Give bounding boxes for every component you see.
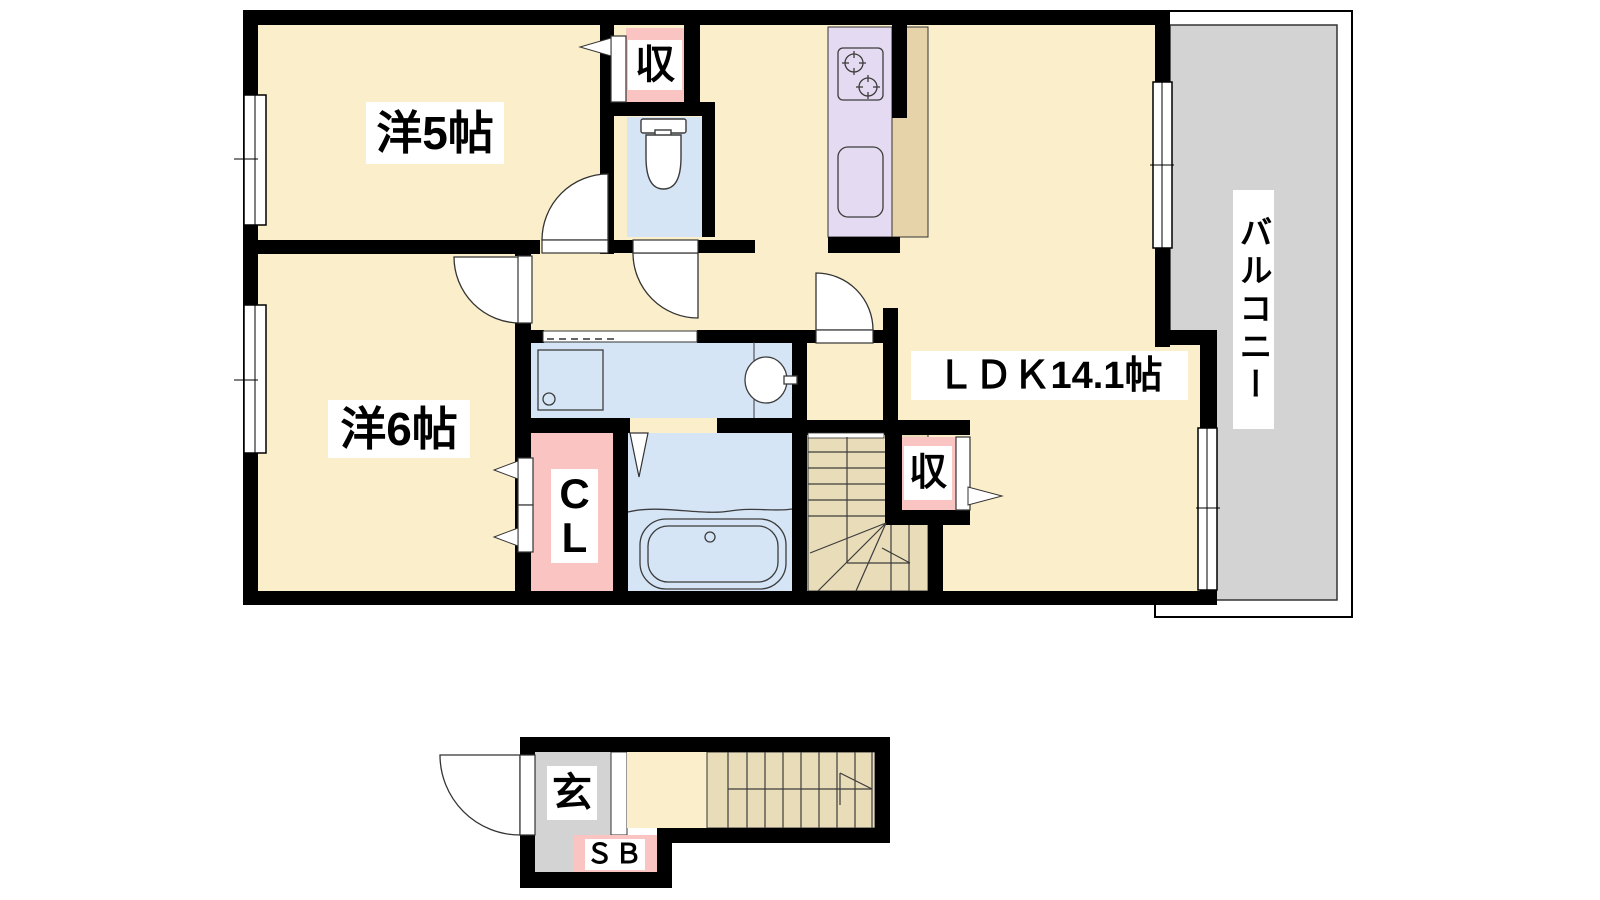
- window-ldk-upper: [1150, 82, 1174, 248]
- door-closet-upper: [518, 458, 533, 505]
- label-shoebox: ＳＢ: [585, 839, 645, 870]
- door-leaf: [542, 240, 608, 253]
- window-room6: [234, 305, 266, 453]
- wall-segment: [243, 10, 1170, 25]
- wall-segment: [520, 737, 535, 757]
- door-leaf: [520, 755, 535, 835]
- door-leaf: [518, 256, 532, 323]
- label-balcony: バルコニー: [1233, 190, 1274, 429]
- wall-segment: [520, 737, 890, 752]
- wall-segment: [522, 418, 630, 433]
- window-ldk-lower: [1196, 428, 1220, 590]
- wall-segment: [684, 24, 700, 104]
- window-room5: [234, 95, 266, 225]
- door-washroom-sliding: [543, 331, 697, 342]
- wall-segment: [520, 833, 535, 888]
- wall-segment: [612, 102, 703, 116]
- label-storage-top: 収: [628, 40, 682, 90]
- stairs-opening: [808, 433, 884, 438]
- wall-segment: [243, 591, 1217, 605]
- label-storage-stairs: 収: [904, 446, 952, 500]
- entrance-door: [440, 755, 535, 835]
- wall-segment: [702, 102, 715, 237]
- entrance-step: [611, 752, 627, 835]
- wall-segment: [520, 872, 672, 888]
- wall-segment: [672, 828, 890, 843]
- wall-segment: [697, 330, 816, 343]
- wall-segment: [828, 237, 900, 253]
- wall-segment: [928, 525, 943, 605]
- label-room6: 洋6帖: [328, 400, 470, 458]
- wall-segment: [515, 240, 531, 256]
- floorplan-page: 洋5帖 洋6帖 ＬＤＫ14.1帖 バルコニー 収 収 CL 玄 ＳＢ: [0, 0, 1600, 900]
- wall-segment: [243, 240, 540, 254]
- wall-segment: [883, 308, 898, 420]
- label-room5: 洋5帖: [366, 102, 504, 164]
- wall-segment: [613, 433, 628, 591]
- label-entrance: 玄: [547, 766, 597, 820]
- lower-stairs-floor: [707, 752, 875, 828]
- door-storage-top: [611, 36, 626, 102]
- lower-hall-floor: [627, 752, 710, 828]
- door-leaf: [816, 330, 873, 343]
- wall-segment: [698, 240, 755, 253]
- label-closet: CL: [551, 469, 598, 563]
- lower-floor-plan: [440, 737, 890, 888]
- wall-segment: [885, 510, 970, 525]
- door-leaf: [633, 240, 698, 253]
- door-closet-lower: [518, 505, 533, 552]
- label-ldk: ＬＤＫ14.1帖: [911, 351, 1188, 400]
- wall-segment: [875, 737, 890, 843]
- wall-segment: [892, 24, 907, 118]
- floorplan-drawing: [0, 0, 1600, 900]
- wall-segment: [885, 420, 902, 525]
